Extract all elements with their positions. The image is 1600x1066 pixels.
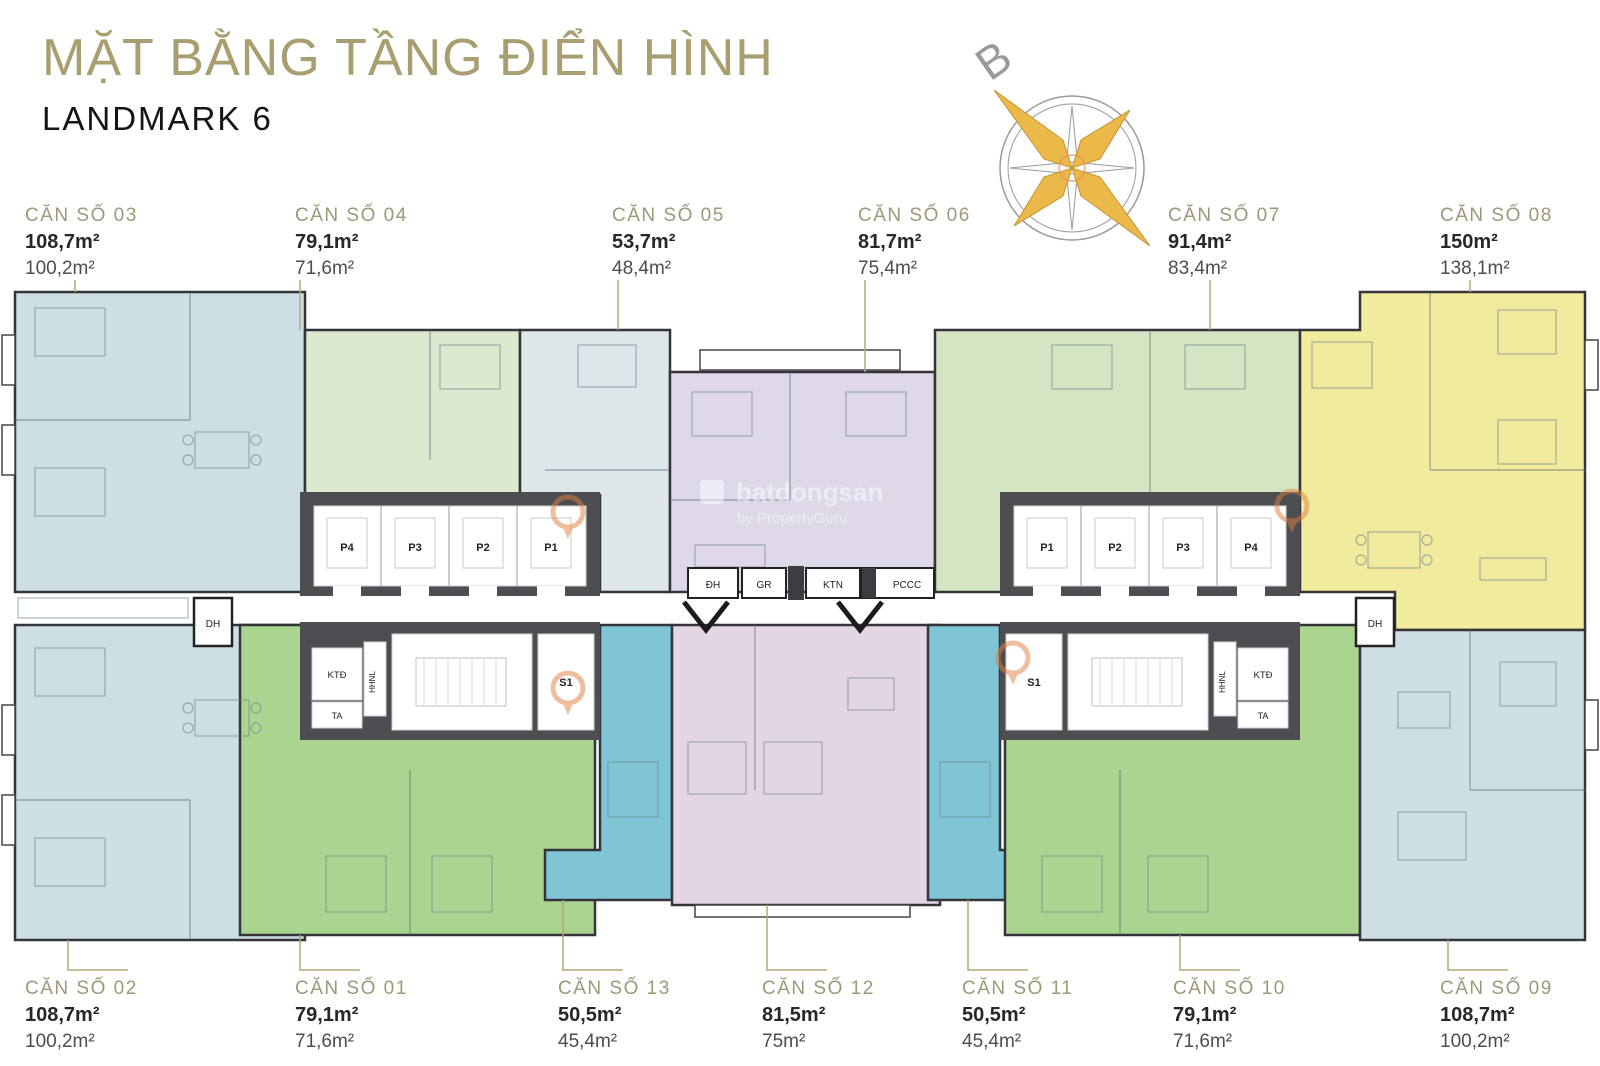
area-construction: 81,5m² [762, 1004, 875, 1027]
tech-room-label-ta: TA [332, 711, 343, 721]
unit-number: CĂN SỐ 03 [25, 205, 138, 227]
area-carpet: 83,4m² [1168, 258, 1281, 280]
elevator-label: P1 [1040, 542, 1053, 554]
unit-number: CĂN SỐ 07 [1168, 205, 1281, 227]
area-carpet: 45,4m² [558, 1031, 671, 1053]
unit-number: CĂN SỐ 06 [858, 205, 971, 227]
area-construction: 108,7m² [1440, 1004, 1553, 1027]
edge-room-label: DH [1368, 619, 1382, 630]
project-name: LANDMARK 6 [42, 100, 774, 138]
unit-label-04: CĂN SỐ 04 79,1m² 71,6m² [295, 205, 408, 280]
area-carpet: 100,2m² [1440, 1031, 1553, 1053]
unit-label-03: CĂN SỐ 03 108,7m² 100,2m² [25, 205, 138, 280]
unit-label-11: CĂN SỐ 11 50,5m² 45,4m² [962, 978, 1073, 1053]
area-carpet: 100,2m² [25, 1031, 138, 1053]
right-stair-core: S1 HHNL KTĐ TA [1000, 622, 1300, 740]
tech-room-label-hhnl: HHNL [1218, 671, 1227, 693]
tech-room-label-ktd: KTĐ [328, 670, 347, 681]
elevator-label: P4 [340, 542, 354, 554]
stair-label: S1 [559, 677, 572, 689]
unit-label-01: CĂN SỐ 01 79,1m² 71,6m² [295, 978, 408, 1053]
unit-number: CĂN SỐ 09 [1440, 978, 1553, 1000]
area-carpet: 138,1m² [1440, 258, 1553, 280]
unit-label-13: CĂN SỐ 13 50,5m² 45,4m² [558, 978, 671, 1053]
building-units [15, 292, 1585, 940]
unit-number: CĂN SỐ 02 [25, 978, 138, 1000]
title-block: MẶT BẰNG TẦNG ĐIỂN HÌNH LANDMARK 6 [42, 28, 774, 138]
elevator-label: P3 [408, 542, 421, 554]
unit-label-09: CĂN SỐ 09 108,7m² 100,2m² [1440, 978, 1553, 1053]
area-construction: 108,7m² [25, 1004, 138, 1027]
floor-plan-svg: P4 P3 P2 P1 P1 P2 P3 P4 [0, 0, 1600, 1066]
area-carpet: 71,6m² [1173, 1031, 1286, 1053]
area-construction: 79,1m² [1173, 1004, 1286, 1027]
unit-label-06: CĂN SỐ 06 81,7m² 75,4m² [858, 205, 971, 280]
unit-label-02: CĂN SỐ 02 108,7m² 100,2m² [25, 978, 138, 1053]
area-carpet: 71,6m² [295, 258, 408, 280]
area-construction: 79,1m² [295, 1004, 408, 1027]
tech-room-label-hhnl: HHNL [368, 671, 377, 693]
area-carpet: 100,2m² [25, 258, 138, 280]
unit-09-region [1360, 630, 1585, 940]
north-label: B [966, 30, 1021, 90]
area-carpet: 75,4m² [858, 258, 971, 280]
unit-08-region [1300, 292, 1585, 630]
unit-number: CĂN SỐ 11 [962, 978, 1073, 1000]
edge-room-label: DH [206, 619, 220, 630]
area-construction: 53,7m² [612, 231, 725, 254]
elevator-label: P2 [1108, 542, 1121, 554]
compass-icon: B [966, 30, 1150, 246]
corridor-room-label: GR [757, 580, 772, 591]
right-elevator-core: P1 P2 P3 P4 [1000, 492, 1300, 596]
unit-12-region [672, 625, 940, 905]
corridor-room-label: KTN [823, 580, 843, 591]
unit-label-10: CĂN SỐ 10 79,1m² 71,6m² [1173, 978, 1286, 1053]
area-construction: 91,4m² [1168, 231, 1281, 254]
stair-label: S1 [1027, 677, 1040, 689]
area-carpet: 71,6m² [295, 1031, 408, 1053]
area-construction: 50,5m² [558, 1004, 671, 1027]
unit-label-05: CĂN SỐ 05 53,7m² 48,4m² [612, 205, 725, 280]
watermark-brand-text: batdongsan [736, 477, 883, 507]
unit-label-07: CĂN SỐ 07 91,4m² 83,4m² [1168, 205, 1281, 280]
area-carpet: 75m² [762, 1031, 875, 1053]
unit-number: CĂN SỐ 08 [1440, 205, 1553, 227]
area-construction: 150m² [1440, 231, 1553, 254]
corridor-room-label: ĐH [706, 580, 720, 591]
unit-number: CĂN SỐ 10 [1173, 978, 1286, 1000]
area-carpet: 45,4m² [962, 1031, 1073, 1053]
unit-number: CĂN SỐ 04 [295, 205, 408, 227]
floor-plan-page: MẶT BẰNG TẦNG ĐIỂN HÌNH LANDMARK 6 [0, 0, 1600, 1066]
elevator-label: P3 [1176, 542, 1189, 554]
unit-number: CĂN SỐ 05 [612, 205, 725, 227]
area-construction: 50,5m² [962, 1004, 1073, 1027]
unit-number: CĂN SỐ 13 [558, 978, 671, 1000]
elevator-label: P1 [544, 542, 557, 554]
tech-room-label-ta: TA [1258, 711, 1269, 721]
elevator-label: P4 [1244, 542, 1258, 554]
area-construction: 108,7m² [25, 231, 138, 254]
area-carpet: 48,4m² [612, 258, 725, 280]
corridor-room-label: PCCC [893, 580, 921, 591]
elevator-label: P2 [476, 542, 489, 554]
watermark-byline-text: by PropertyGuru [737, 510, 847, 527]
tech-room-label-ktd: KTĐ [1254, 670, 1273, 681]
corridor-rooms: ĐH GR KTN PCCC [684, 566, 934, 630]
unit-number: CĂN SỐ 12 [762, 978, 875, 1000]
unit-label-08: CĂN SỐ 08 150m² 138,1m² [1440, 205, 1553, 280]
area-construction: 81,7m² [858, 231, 971, 254]
page-title: MẶT BẰNG TẦNG ĐIỂN HÌNH [42, 28, 774, 88]
area-construction: 79,1m² [295, 231, 408, 254]
unit-03-region [15, 292, 305, 592]
unit-number: CĂN SỐ 01 [295, 978, 408, 1000]
unit-label-12: CĂN SỐ 12 81,5m² 75m² [762, 978, 875, 1053]
